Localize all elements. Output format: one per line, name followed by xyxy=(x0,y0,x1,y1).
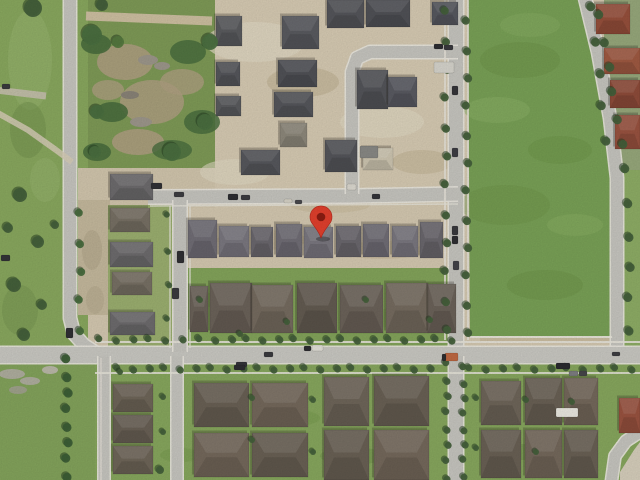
image-grain-overlay xyxy=(0,0,640,480)
map-container xyxy=(0,0,640,480)
satellite-map-canvas[interactable] xyxy=(0,0,640,480)
